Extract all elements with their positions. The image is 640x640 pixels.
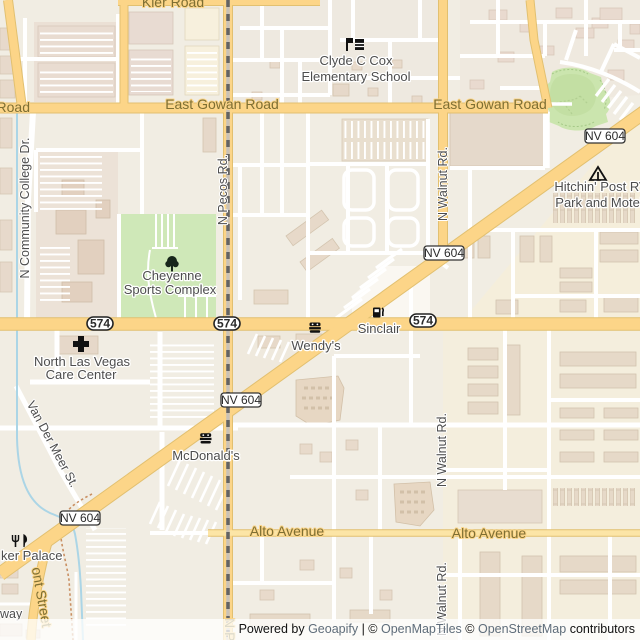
svg-text:Sports Complex: Sports Complex [124,282,217,297]
svg-text:NV 604: NV 604 [221,393,261,407]
svg-text:Park and Motel: Park and Motel [555,195,640,210]
svg-text:Sinclair: Sinclair [358,321,401,336]
svg-text:NV 604: NV 604 [60,511,100,525]
svg-text:N Walnut Rd.: N Walnut Rd. [436,147,450,221]
svg-text:N Walnut Rd.: N Walnut Rd. [435,413,449,487]
svg-text:N Pecos Rd.: N Pecos Rd. [216,155,230,225]
svg-text:East Gowan Road: East Gowan Road [433,96,547,112]
svg-text:574: 574 [90,317,110,331]
svg-text:East Gowan Road: East Gowan Road [165,96,279,112]
svg-text:Wendy's: Wendy's [291,338,341,353]
svg-text:Alto Avenue: Alto Avenue [250,523,325,539]
svg-text:NV 604: NV 604 [585,129,625,143]
svg-text:NV 604: NV 604 [424,246,464,260]
svg-text:Hitchin' Post RV: Hitchin' Post RV [554,179,640,194]
svg-text:N Community College Dr.: N Community College Dr. [18,137,32,278]
svg-text:ker Palace: ker Palace [1,548,62,563]
svg-text:Clyde C Cox: Clyde C Cox [320,53,393,68]
svg-text:574: 574 [217,317,237,331]
svg-text:McDonald's: McDonald's [172,448,240,463]
svg-text:Kier Road: Kier Road [142,0,204,10]
svg-text:Cheyenne: Cheyenne [142,268,201,283]
svg-text:way: way [0,607,23,621]
svg-text:East Gowan Road: East Gowan Road [0,99,30,115]
svg-text:Alto Avenue: Alto Avenue [452,525,527,541]
svg-text:Care Center: Care Center [46,367,117,382]
svg-text:Elementary School: Elementary School [301,69,410,84]
svg-text:574: 574 [413,314,433,328]
svg-text:Powered by Geoapify | © OpenMa: Powered by Geoapify | © OpenMapTiles © O… [239,622,635,636]
